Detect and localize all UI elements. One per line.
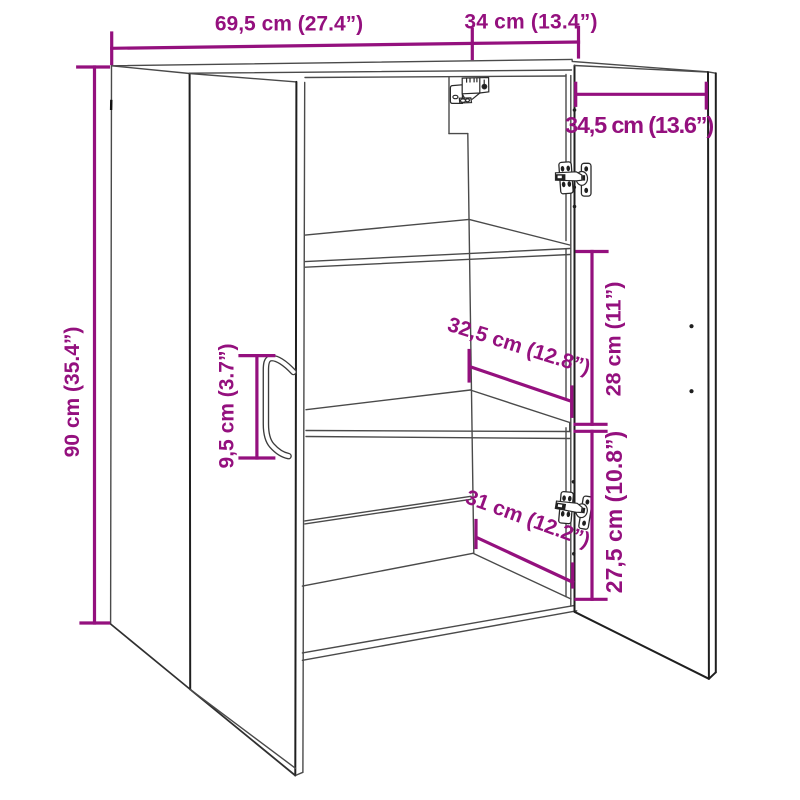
svg-text:9,5 cm (3.7”): 9,5 cm (3.7”) xyxy=(216,344,239,469)
svg-text:27,5 cm (10.8”): 27,5 cm (10.8”) xyxy=(601,431,627,593)
svg-text:34,5 cm (13.6”): 34,5 cm (13.6”) xyxy=(565,112,713,138)
svg-text:90 cm (35.4”): 90 cm (35.4”) xyxy=(61,327,84,458)
svg-text:69,5 cm (27.4”): 69,5 cm (27.4”) xyxy=(215,13,363,36)
svg-text:28 cm (11”): 28 cm (11”) xyxy=(602,282,626,397)
svg-text:34 cm (13.4”): 34 cm (13.4”) xyxy=(464,11,597,34)
